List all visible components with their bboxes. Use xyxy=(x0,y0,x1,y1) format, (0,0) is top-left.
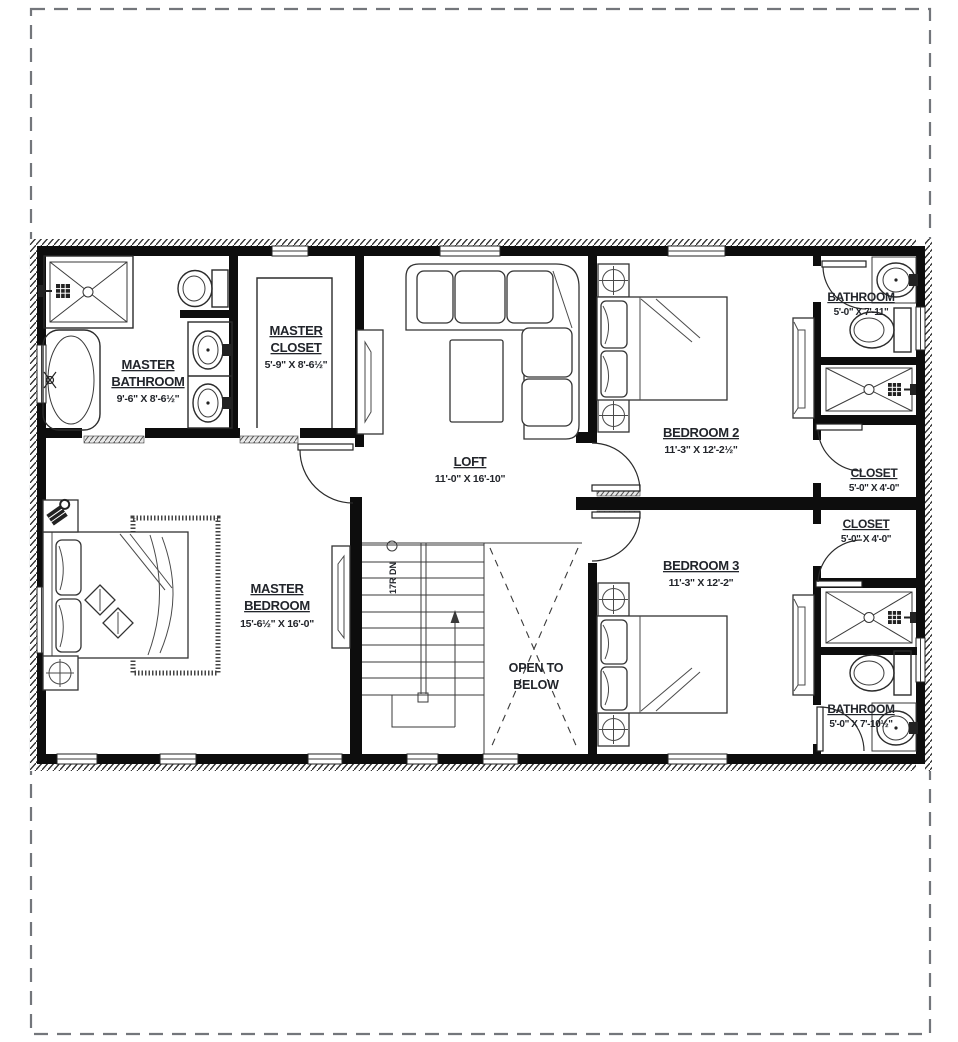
nightstand xyxy=(598,713,629,746)
room-label-bedroom2: BEDROOM 2 11'-3" X 12'-2½" xyxy=(663,425,739,456)
annotation: OPEN TO xyxy=(509,661,564,675)
faucet-icon xyxy=(222,397,231,409)
nightstand xyxy=(598,583,629,616)
room-label-closet-top: CLOSET 5'-0" X 4'-0" xyxy=(849,466,900,494)
room-dims: 5'-0" X 7'-10½" xyxy=(829,719,893,730)
room-name: MASTER xyxy=(250,581,304,596)
dresser xyxy=(793,595,814,695)
shower-drain-icon xyxy=(888,611,901,624)
bedroom2-door xyxy=(592,443,640,491)
stair-walkline xyxy=(392,695,455,727)
page-border xyxy=(31,9,930,1034)
loft-furniture xyxy=(357,264,579,439)
shower xyxy=(826,368,916,411)
toilet xyxy=(178,270,228,307)
shower xyxy=(38,256,133,328)
master-tv-console xyxy=(332,546,350,648)
floor-plan-page: 17R DN MASTER BATHROOM 9'-6" X 8'-6½" MA… xyxy=(0,0,958,1042)
label-open-to-below: OPEN TO BELOW xyxy=(509,661,564,692)
room-label-bathroom-bottom: BATHROOM 5'-0" X 7'-10½" xyxy=(827,702,895,730)
nightstand xyxy=(43,498,78,532)
loft-tv-console xyxy=(357,330,383,434)
master-bedroom-furniture xyxy=(43,498,350,690)
bedroom3-furniture xyxy=(597,583,814,746)
room-label-bathroom-top: BATHROOM 5'-0" X 7'-11" xyxy=(827,290,895,318)
nightstand xyxy=(43,656,78,690)
room-dims: 5'-9" X 8'-6½" xyxy=(265,359,328,371)
master-bedroom-door xyxy=(298,444,353,503)
dresser xyxy=(793,318,814,418)
room-dims: 15'-6½" X 16'-0" xyxy=(240,618,314,630)
nightstand xyxy=(598,399,629,432)
room-dims: 11'-3" X 12'-2½" xyxy=(664,444,738,456)
hatch-right xyxy=(925,239,932,771)
bathroom-top-fixtures xyxy=(826,257,918,411)
room-name: MASTER xyxy=(269,323,323,338)
room-name: BEDROOM 3 xyxy=(663,558,739,573)
shower-drain-icon xyxy=(56,284,70,298)
floor-plan-drawing: 17R DN MASTER BATHROOM 9'-6" X 8'-6½" MA… xyxy=(0,0,958,1042)
room-dims: 5'-0" X 4'-0" xyxy=(841,534,892,545)
hatch-top xyxy=(37,239,916,246)
open-to-below xyxy=(490,548,578,750)
shower-valve-icon xyxy=(904,384,916,395)
faucet-icon xyxy=(909,722,918,734)
staircase: 17R DN xyxy=(362,541,582,754)
room-name: BATHROOM xyxy=(827,290,895,304)
room-name: BATHROOM xyxy=(827,702,895,716)
vanity-double-sink xyxy=(188,322,232,428)
room-name: BEDROOM 2 xyxy=(663,425,739,440)
hatch-bottom xyxy=(37,764,916,771)
room-label-master-bathroom: MASTER BATHROOM 9'-6" X 8'-6½" xyxy=(111,357,184,405)
room-name: CLOSET xyxy=(843,517,891,531)
stair-treads xyxy=(362,545,484,695)
room-dims: 11'-3" X 12'-2" xyxy=(669,577,734,589)
room-label-closet-bottom: CLOSET 5'-0" X 4'-0" xyxy=(841,517,892,545)
room-name: CLOSET xyxy=(851,466,899,480)
room-name: LOFT xyxy=(454,454,487,469)
faucet-icon xyxy=(909,274,918,286)
bed xyxy=(597,616,727,713)
room-label-master-bedroom: MASTER BEDROOM 15'-6½" X 16'-0" xyxy=(240,581,314,630)
room-name: MASTER xyxy=(121,357,175,372)
shower-drain-icon xyxy=(888,383,901,396)
bed xyxy=(43,532,188,658)
annotation: BELOW xyxy=(513,678,559,692)
room-label-bedroom3: BEDROOM 3 11'-3" X 12'-2" xyxy=(663,558,739,589)
room-label-master-closet: MASTER CLOSET 5'-9" X 8'-6½" xyxy=(265,323,328,371)
room-dims: 11'-0" X 16'-10" xyxy=(435,473,506,485)
interior-walls xyxy=(43,256,917,754)
room-dims: 5'-0" X 7'-11" xyxy=(834,307,889,318)
bathtub xyxy=(43,330,100,430)
toilet xyxy=(850,651,911,695)
shower-valve-icon xyxy=(904,612,916,623)
shower xyxy=(826,592,916,643)
room-dims: 9'-6" X 8'-6½" xyxy=(117,393,180,405)
nightstand xyxy=(598,264,629,297)
closet-top-door xyxy=(816,424,862,471)
stair-note: 17R DN xyxy=(388,562,398,594)
room-dims: 5'-0" X 4'-0" xyxy=(849,483,900,494)
bed xyxy=(597,297,727,400)
room-name: BATHROOM xyxy=(111,374,184,389)
hatch-left xyxy=(30,239,37,771)
coffee-table xyxy=(450,340,503,422)
bedroom3-door xyxy=(592,512,640,561)
room-name: BEDROOM xyxy=(244,598,310,613)
room-name: CLOSET xyxy=(271,340,322,355)
room-label-loft: LOFT 11'-0" X 16'-10" xyxy=(435,454,506,485)
faucet-icon xyxy=(222,344,231,356)
bedroom2-furniture xyxy=(597,264,814,432)
